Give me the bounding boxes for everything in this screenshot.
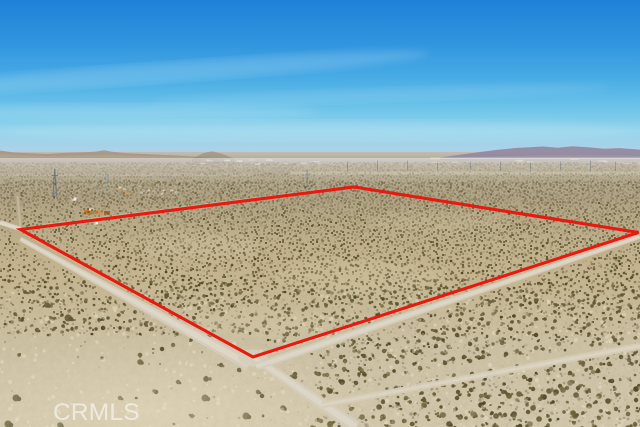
- svg-text:CRMLS: CRMLS: [53, 399, 140, 426]
